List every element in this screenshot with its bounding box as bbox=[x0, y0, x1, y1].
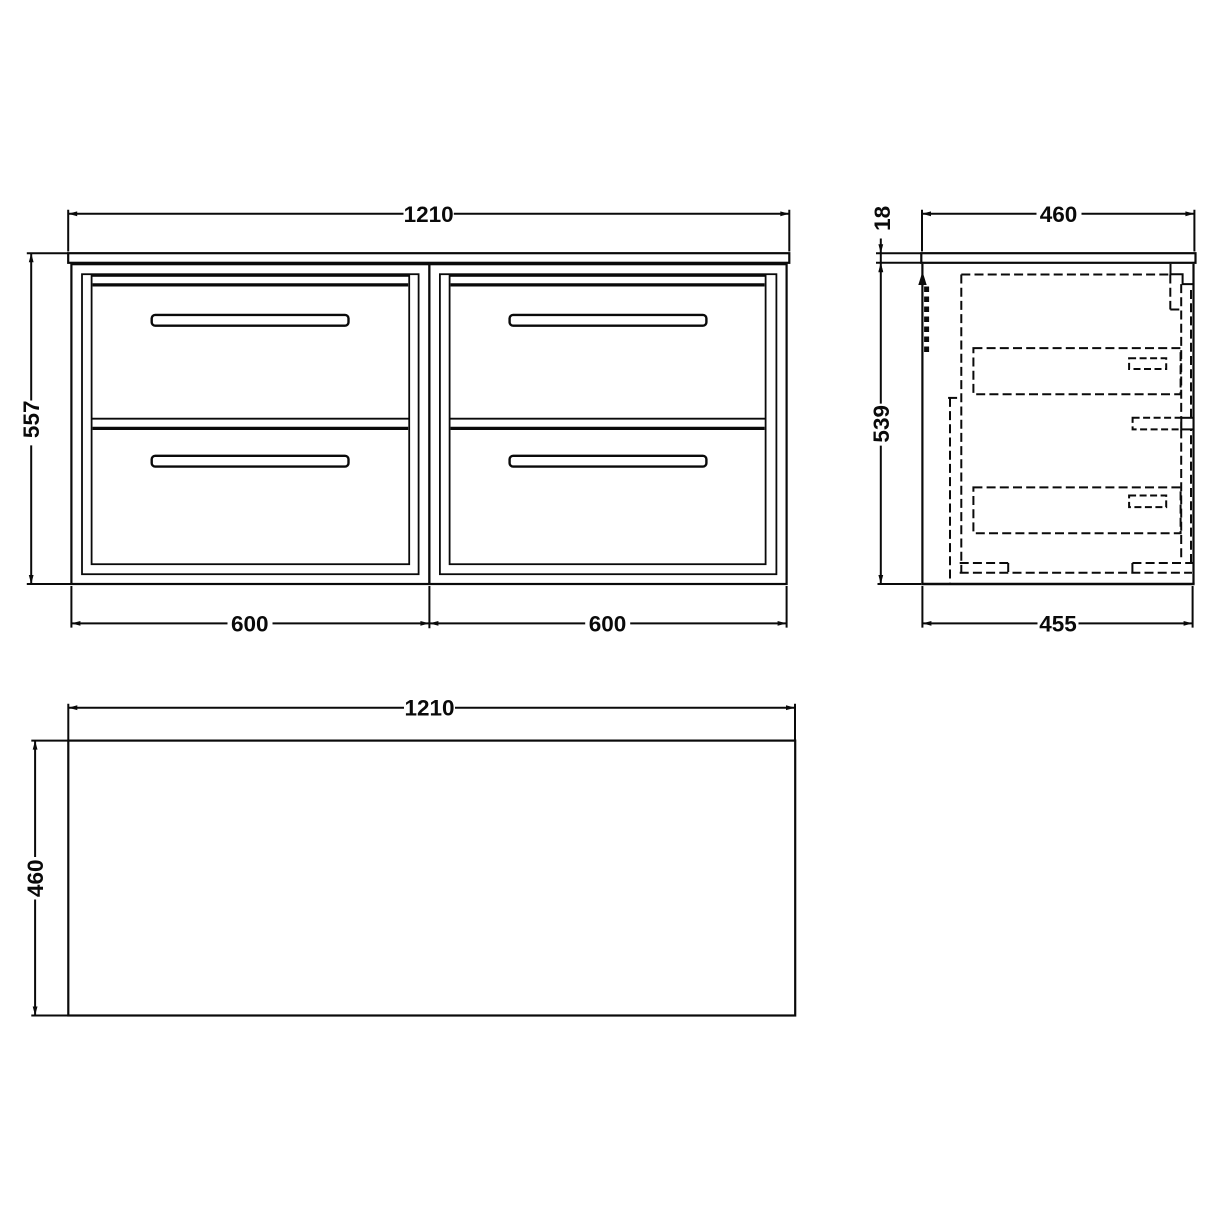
svg-text:1210: 1210 bbox=[404, 202, 454, 227]
svg-text:455: 455 bbox=[1039, 611, 1077, 636]
svg-text:18: 18 bbox=[870, 206, 895, 231]
svg-text:460: 460 bbox=[23, 860, 48, 898]
svg-text:1210: 1210 bbox=[404, 696, 454, 721]
svg-text:600: 600 bbox=[231, 611, 269, 636]
svg-text:460: 460 bbox=[1040, 202, 1078, 227]
svg-text:600: 600 bbox=[589, 611, 627, 636]
svg-text:539: 539 bbox=[869, 405, 894, 443]
svg-text:557: 557 bbox=[19, 401, 44, 439]
